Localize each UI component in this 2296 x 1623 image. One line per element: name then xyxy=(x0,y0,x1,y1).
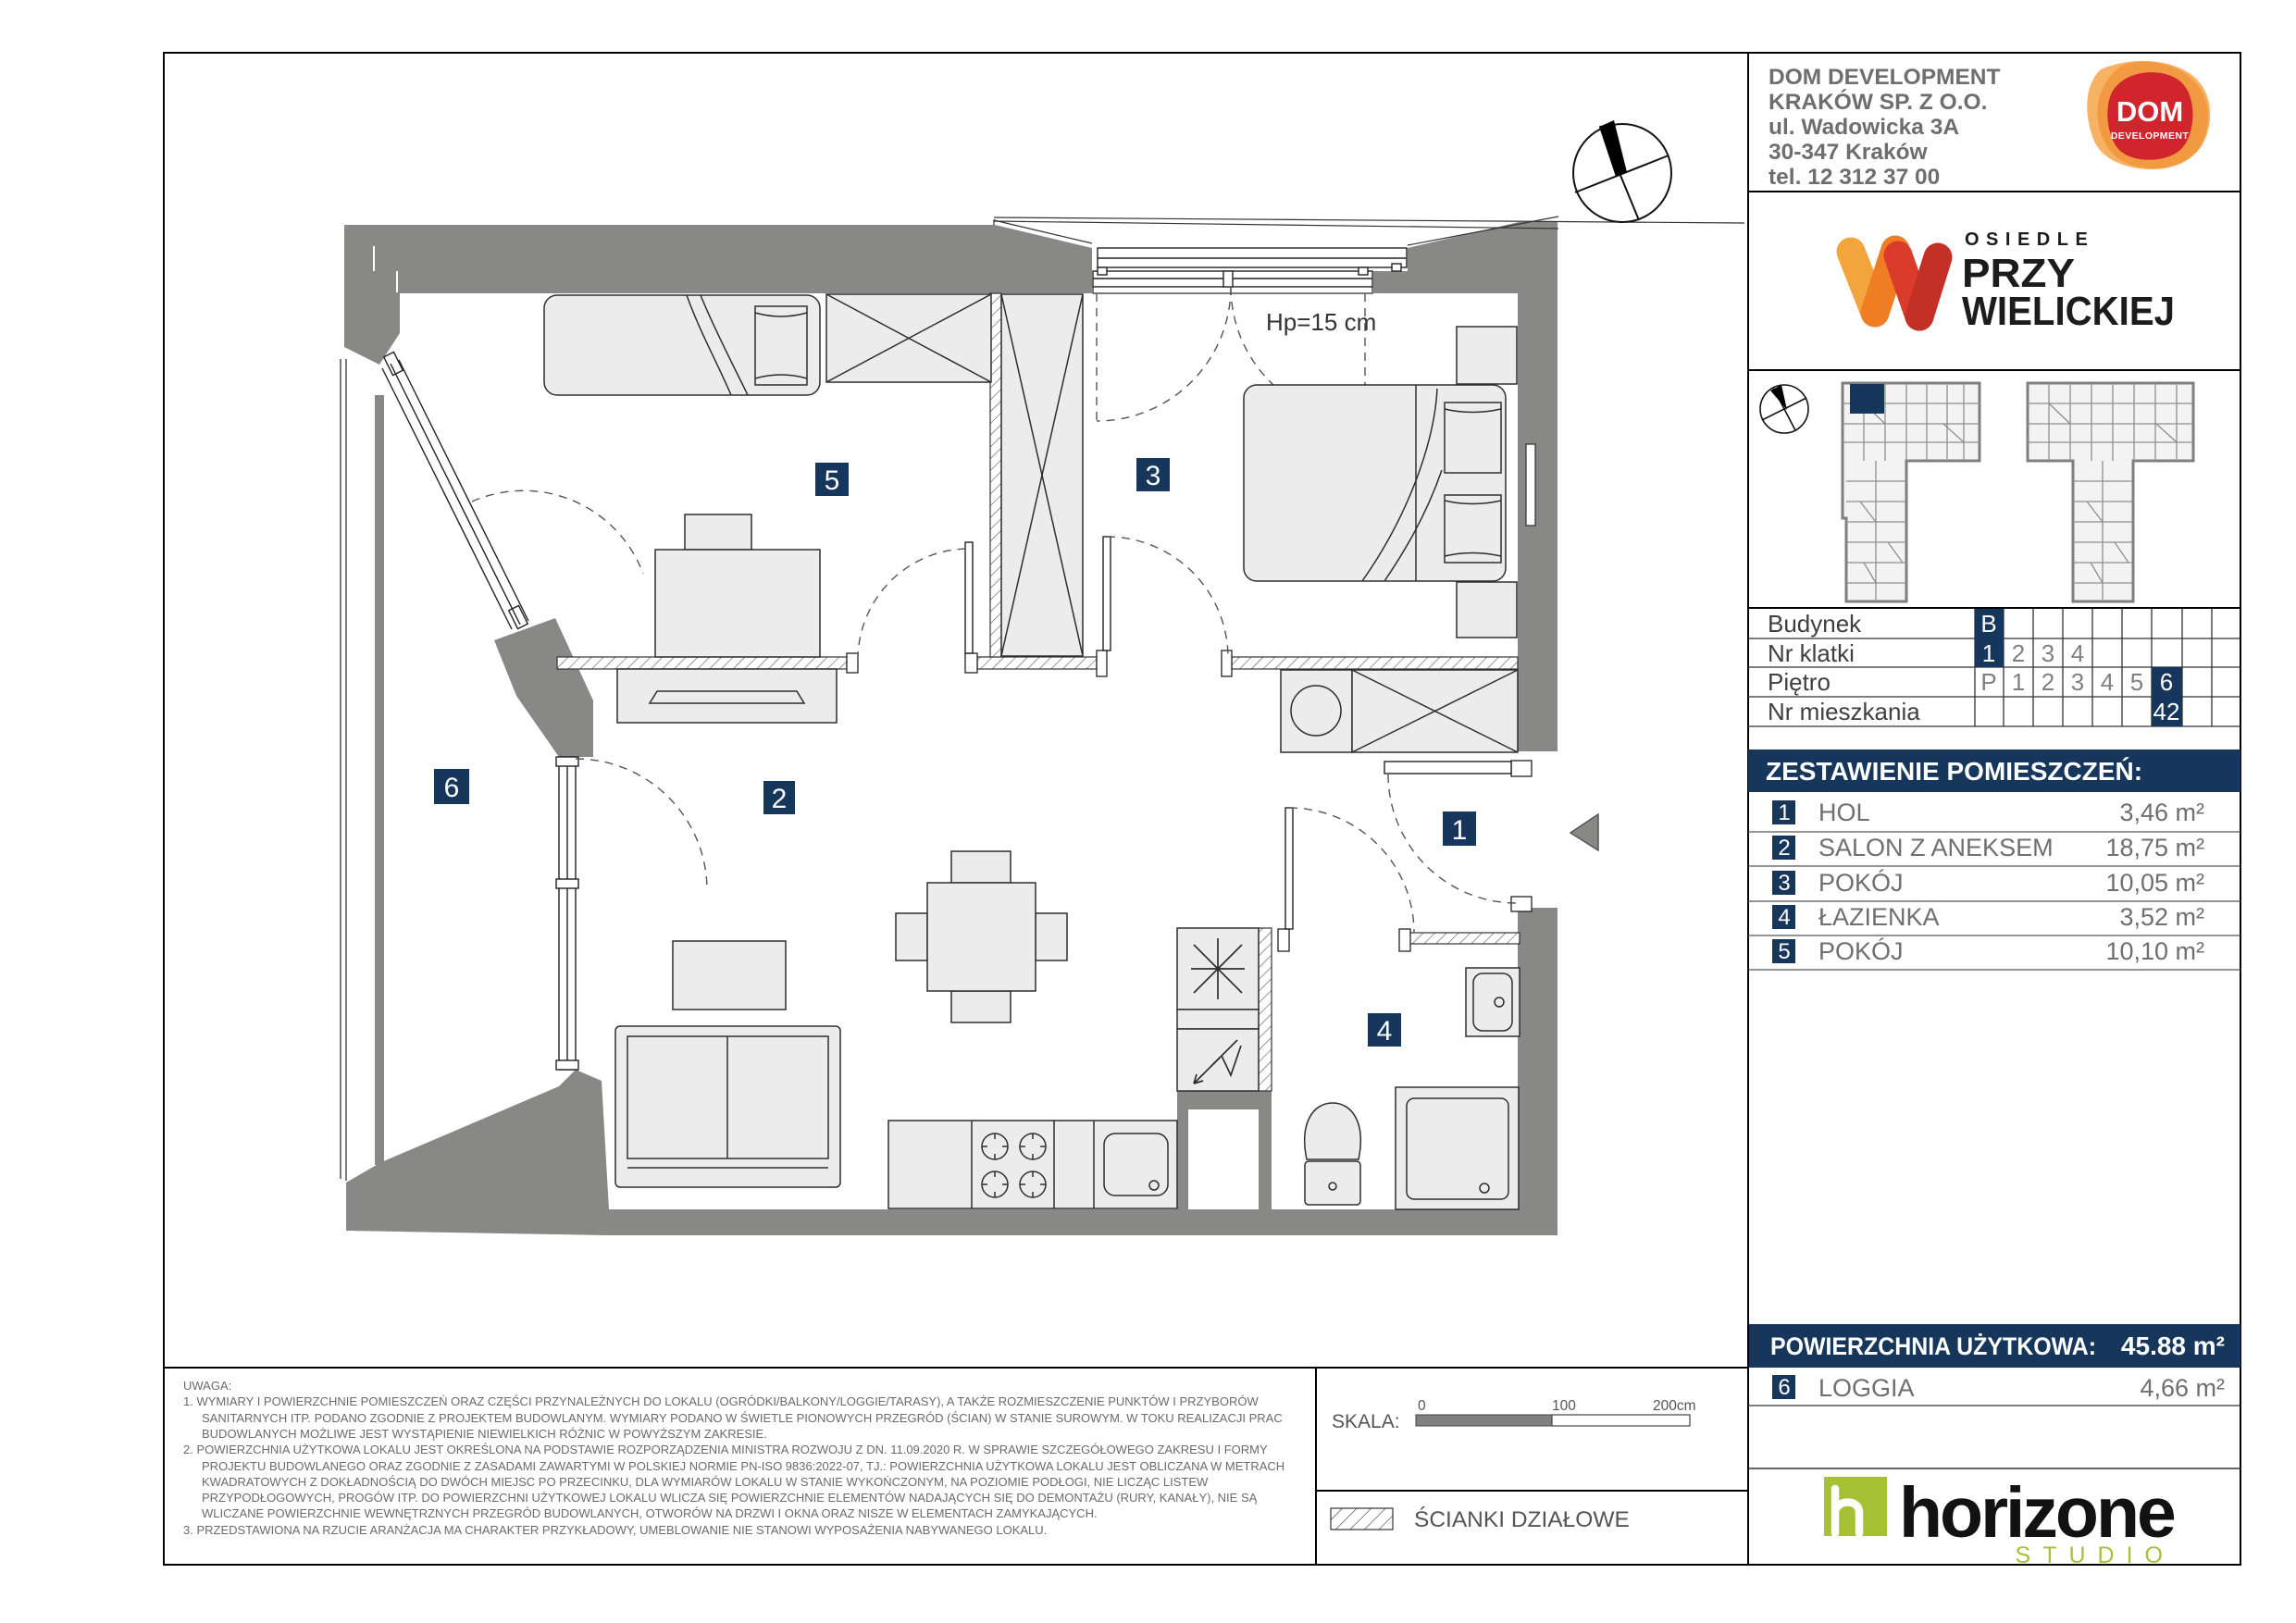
svg-text:2: 2 xyxy=(2012,639,2025,667)
svg-text:Nr mieszkania: Nr mieszkania xyxy=(1768,698,1920,725)
svg-text:Budynek: Budynek xyxy=(1768,610,1862,638)
svg-text:tel. 12 312 37 00: tel. 12 312 37 00 xyxy=(1769,165,1940,190)
svg-text:6: 6 xyxy=(1778,1375,1790,1400)
svg-text:POWIERZCHNIA UŻYTKOWA:: POWIERZCHNIA UŻYTKOWA: xyxy=(1770,1332,2096,1360)
svg-text:WIELICKIEJ: WIELICKIEJ xyxy=(1962,289,2175,334)
svg-text:5: 5 xyxy=(2130,668,2143,696)
svg-text:BUDOWLANYCH MOŻLIWE JEST WYSTĄ: BUDOWLANYCH MOŻLIWE JEST WYSTĄPIENIE NIE… xyxy=(202,1427,767,1441)
svg-text:PRZYPODŁOGOWYCH, PROGÓW ITP. D: PRZYPODŁOGOWYCH, PROGÓW ITP. DO POWIERZC… xyxy=(202,1491,1258,1505)
svg-text:6: 6 xyxy=(2160,668,2173,696)
svg-text:3. PRZEDSTAWIONA NA RZUCIE ARA: 3. PRZEDSTAWIONA NA RZUCIE ARANŻACJA MA … xyxy=(183,1523,1047,1537)
svg-text:DOM DEVELOPMENT: DOM DEVELOPMENT xyxy=(1769,65,2000,90)
svg-text:4: 4 xyxy=(2101,668,2114,696)
svg-text:4: 4 xyxy=(1377,1016,1393,1047)
svg-text:0: 0 xyxy=(1418,1398,1426,1414)
svg-text:Hp=15 cm: Hp=15 cm xyxy=(1266,308,1376,336)
svg-text:100: 100 xyxy=(1552,1398,1576,1414)
svg-text:UWAGA:: UWAGA: xyxy=(183,1379,231,1393)
svg-text:B: B xyxy=(1980,610,1996,638)
svg-text:KWADRATOWYCH Z DOKŁADNOŚCIĄ DO: KWADRATOWYCH Z DOKŁADNOŚCIĄ DO DWÓCH MIE… xyxy=(202,1475,1209,1489)
svg-text:3,46 m²: 3,46 m² xyxy=(2119,799,2204,826)
svg-text:200cm: 200cm xyxy=(1653,1398,1696,1414)
svg-text:30-347 Kraków: 30-347 Kraków xyxy=(1769,140,1929,165)
svg-text:1: 1 xyxy=(1778,800,1790,825)
svg-text:3: 3 xyxy=(2071,668,2084,696)
svg-text:6: 6 xyxy=(444,773,460,803)
svg-text:45.88 m²: 45.88 m² xyxy=(2121,1332,2225,1360)
svg-text:ŁAZIENKA: ŁAZIENKA xyxy=(1818,903,1940,931)
svg-text:HOL: HOL xyxy=(1818,799,1870,826)
svg-text:DOM: DOM xyxy=(2116,95,2183,128)
svg-text:P: P xyxy=(1980,668,1996,696)
svg-text:KRAKÓW SP. Z O.O.: KRAKÓW SP. Z O.O. xyxy=(1769,89,1987,115)
svg-text:OSIEDLE: OSIEDLE xyxy=(1965,229,2094,250)
svg-text:1: 1 xyxy=(1982,639,1995,667)
svg-text:POKÓJ: POKÓJ xyxy=(1818,868,1904,897)
svg-text:Nr klatki: Nr klatki xyxy=(1768,639,1855,667)
svg-text:Piętro: Piętro xyxy=(1768,668,1831,696)
svg-text:4,66 m²: 4,66 m² xyxy=(2140,1374,2225,1402)
svg-text:SALON Z ANEKSEM: SALON Z ANEKSEM xyxy=(1818,834,2054,861)
svg-text:SKALA:: SKALA: xyxy=(1332,1411,1400,1432)
svg-text:ZESTAWIENIE POMIESZCZEŃ:: ZESTAWIENIE POMIESZCZEŃ: xyxy=(1766,757,2142,786)
svg-text:5: 5 xyxy=(825,465,840,496)
svg-text:2: 2 xyxy=(2042,668,2054,696)
svg-text:3: 3 xyxy=(2042,639,2054,667)
svg-text:DEVELOPMENT: DEVELOPMENT xyxy=(2111,130,2190,142)
svg-text:42: 42 xyxy=(2153,698,2180,725)
svg-text:1. WYMIARY I POWIERZCHNIE POMI: 1. WYMIARY I POWIERZCHNIE POMIESZCZEŃ OR… xyxy=(183,1394,1259,1408)
svg-text:2. POWIERZCHNIA UŻYTKOWA LOKAL: 2. POWIERZCHNIA UŻYTKOWA LOKALU JEST OKR… xyxy=(183,1443,1268,1456)
svg-text:5: 5 xyxy=(1778,939,1790,964)
svg-text:2: 2 xyxy=(772,784,788,814)
svg-text:ul. Wadowicka 3A: ul. Wadowicka 3A xyxy=(1769,115,1959,140)
svg-text:2: 2 xyxy=(1778,836,1790,861)
svg-text:4: 4 xyxy=(1778,905,1790,930)
svg-text:WLICZANE POWIERZCHNIE WEWNĘTRZ: WLICZANE POWIERZCHNIE WEWNĘTRZNYCH PRZEG… xyxy=(202,1506,1098,1520)
svg-text:LOGGIA: LOGGIA xyxy=(1818,1374,1915,1402)
svg-text:3,52 m²: 3,52 m² xyxy=(2119,903,2204,931)
svg-text:3: 3 xyxy=(1778,871,1790,896)
svg-text:10,05 m²: 10,05 m² xyxy=(2105,869,2204,897)
svg-text:SANITARNYCH ITP. PODANO ZGODNI: SANITARNYCH ITP. PODANO ZGODNIE Z PROJEK… xyxy=(202,1411,1283,1425)
svg-text:4: 4 xyxy=(2071,639,2084,667)
svg-text:18,75 m²: 18,75 m² xyxy=(2105,834,2204,861)
svg-text:1: 1 xyxy=(1452,815,1468,846)
svg-text:PROJEKTU BUDOWLANEGO ORAZ ZGOD: PROJEKTU BUDOWLANEGO ORAZ ZGODNIE Z ZASA… xyxy=(202,1459,1285,1473)
svg-text:horizone: horizone xyxy=(1899,1473,2175,1553)
svg-text:10,10 m²: 10,10 m² xyxy=(2105,937,2204,965)
svg-text:STUDIO: STUDIO xyxy=(2016,1542,2175,1568)
svg-text:3: 3 xyxy=(1146,461,1161,491)
svg-text:1: 1 xyxy=(2012,668,2025,696)
svg-text:POKÓJ: POKÓJ xyxy=(1818,936,1904,965)
svg-text:ŚCIANKI DZIAŁOWE: ŚCIANKI DZIAŁOWE xyxy=(1414,1506,1630,1532)
